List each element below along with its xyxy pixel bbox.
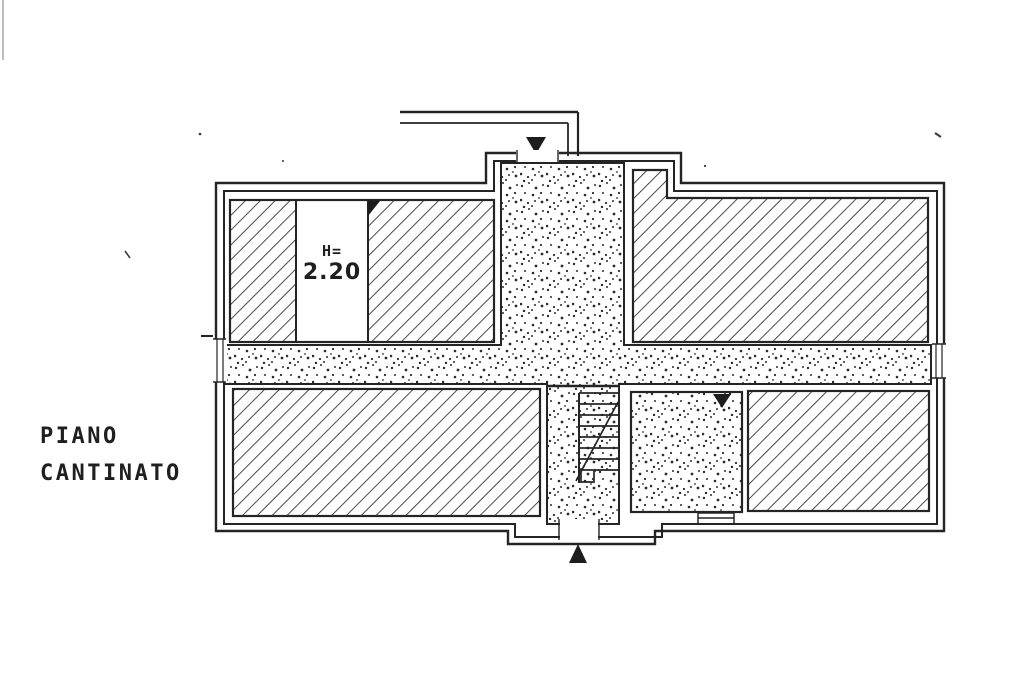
bottom-door-opening — [559, 519, 599, 540]
room-bottom-right — [748, 391, 929, 511]
room-height-prefix: H= — [292, 241, 372, 261]
room-bottom-center — [631, 392, 742, 512]
room-height-annotation: H= 2.20 — [292, 241, 372, 285]
room-bottom-left — [233, 389, 540, 516]
top-door-opening — [516, 150, 559, 164]
right-window — [932, 344, 947, 378]
floor-title-line1: PIANO — [40, 418, 182, 455]
room-height-value: 2.20 — [292, 261, 372, 285]
floor-title-line2: CANTINATO — [40, 455, 182, 492]
floor-title: PIANO CANTINATO — [40, 418, 182, 492]
floor-plan-drawing — [0, 0, 1024, 683]
scanned-floor-plan-page: PIANO CANTINATO H= 2.20 — [0, 0, 1024, 683]
